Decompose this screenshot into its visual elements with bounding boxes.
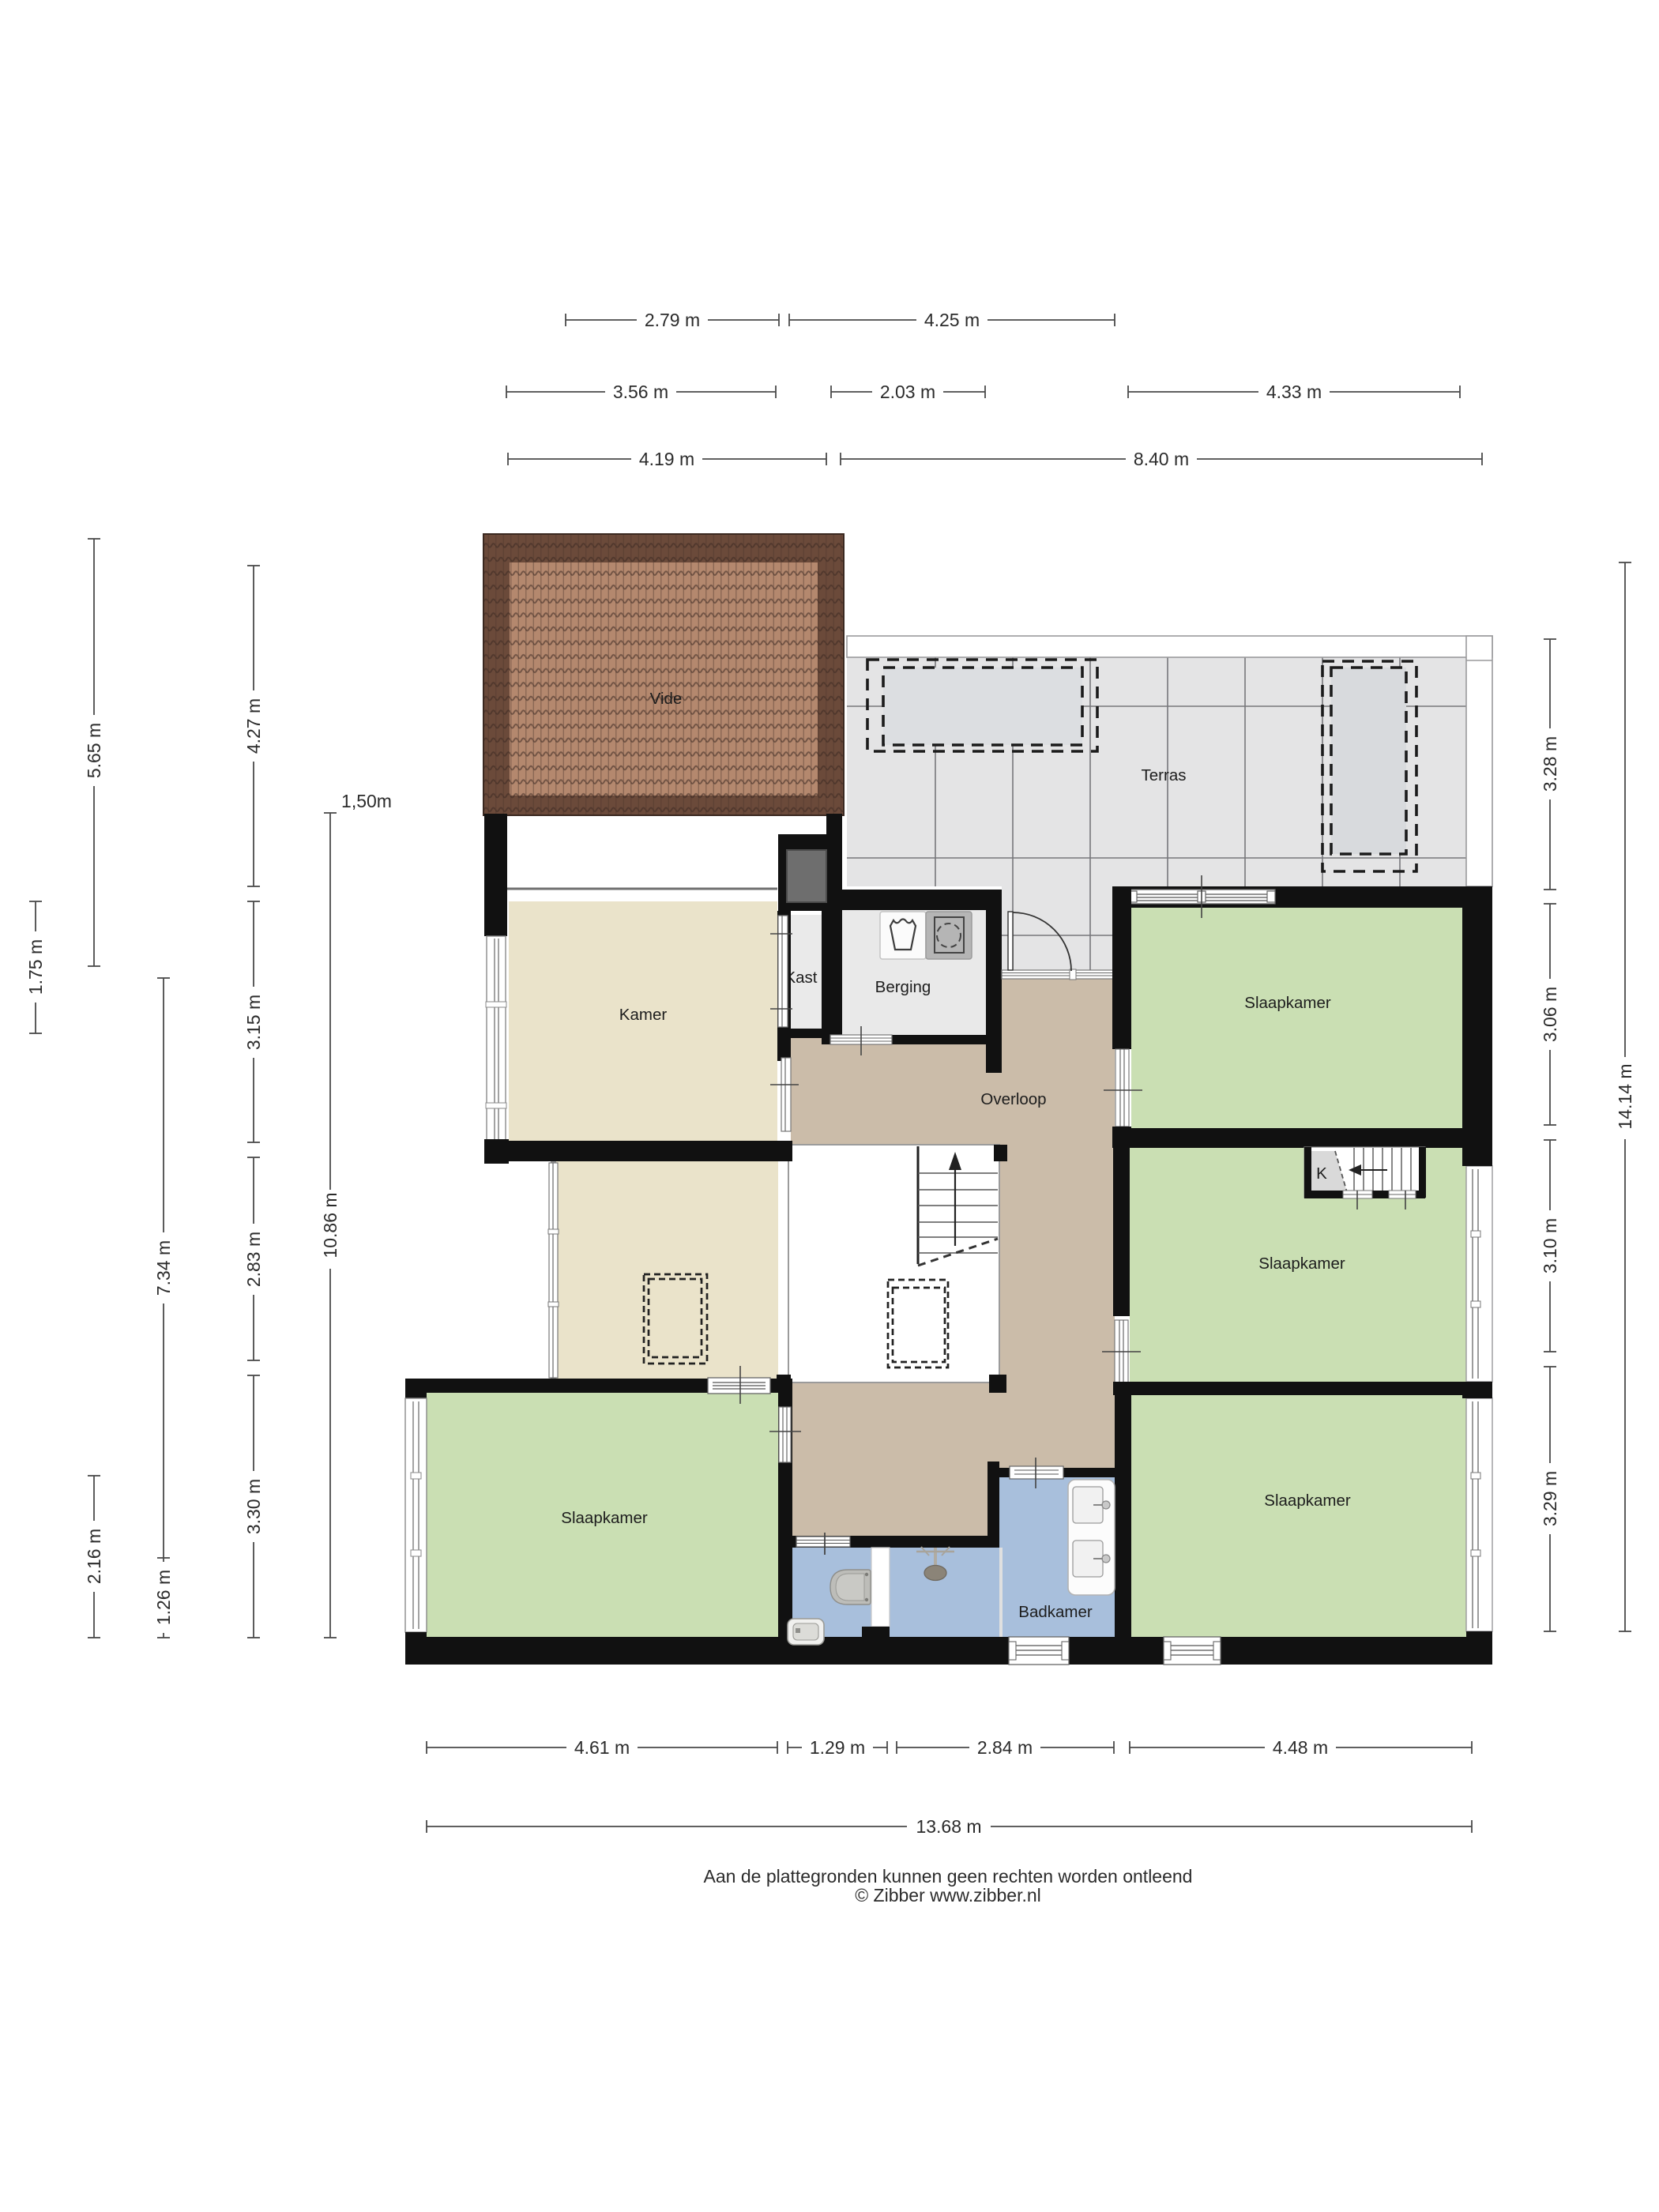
- svg-text:2.03 m: 2.03 m: [880, 382, 935, 402]
- svg-text:4.48 m: 4.48 m: [1273, 1737, 1328, 1758]
- svg-text:4.25 m: 4.25 m: [924, 310, 980, 330]
- svg-text:7.34 m: 7.34 m: [153, 1240, 174, 1296]
- svg-text:5.65 m: 5.65 m: [84, 723, 104, 778]
- svg-text:3.29 m: 3.29 m: [1540, 1471, 1560, 1526]
- svg-text:Aan de plattegronden kunnen ge: Aan de plattegronden kunnen geen rechten…: [704, 1866, 1193, 1887]
- svg-text:Slaapkamer: Slaapkamer: [1258, 1255, 1345, 1273]
- svg-text:Kamer: Kamer: [619, 1006, 668, 1024]
- svg-text:4.61 m: 4.61 m: [574, 1737, 630, 1758]
- svg-text:4.19 m: 4.19 m: [639, 449, 694, 469]
- svg-text:Vide: Vide: [650, 690, 683, 708]
- svg-text:3.06 m: 3.06 m: [1540, 987, 1560, 1042]
- svg-text:1.26 m: 1.26 m: [153, 1570, 174, 1625]
- svg-text:4.33 m: 4.33 m: [1266, 382, 1322, 402]
- svg-text:1.29 m: 1.29 m: [810, 1737, 865, 1758]
- svg-text:3.30 m: 3.30 m: [243, 1479, 264, 1534]
- svg-text:3.56 m: 3.56 m: [613, 382, 668, 402]
- svg-text:4.27 m: 4.27 m: [243, 698, 264, 754]
- svg-text:2.16 m: 2.16 m: [84, 1529, 104, 1584]
- svg-text:3.10 m: 3.10 m: [1540, 1218, 1560, 1273]
- svg-text:1.75 m: 1.75 m: [25, 939, 46, 995]
- svg-text:Slaapkamer: Slaapkamer: [1244, 994, 1331, 1012]
- svg-text:Slaapkamer: Slaapkamer: [1264, 1492, 1351, 1510]
- svg-text:3.28 m: 3.28 m: [1540, 736, 1560, 792]
- svg-text:2.83 m: 2.83 m: [243, 1232, 264, 1287]
- svg-text:Overloop: Overloop: [980, 1090, 1046, 1108]
- svg-text:Berging: Berging: [875, 978, 931, 996]
- svg-text:2.79 m: 2.79 m: [645, 310, 700, 330]
- svg-text:3.15 m: 3.15 m: [243, 995, 264, 1050]
- svg-text:K: K: [1316, 1164, 1327, 1183]
- svg-text:Slaapkamer: Slaapkamer: [561, 1509, 648, 1527]
- svg-text:Terras: Terras: [1142, 766, 1187, 784]
- svg-text:Badkamer: Badkamer: [1018, 1603, 1093, 1621]
- svg-text:© Zibber www.zibber.nl: © Zibber www.zibber.nl: [855, 1885, 1041, 1905]
- svg-text:8.40 m: 8.40 m: [1134, 449, 1189, 469]
- svg-text:1,50m: 1,50m: [341, 791, 392, 811]
- svg-text:2.84 m: 2.84 m: [977, 1737, 1033, 1758]
- svg-text:13.68 m: 13.68 m: [916, 1816, 981, 1837]
- svg-text:14.14 m: 14.14 m: [1615, 1063, 1635, 1129]
- svg-text:10.86 m: 10.86 m: [320, 1192, 340, 1258]
